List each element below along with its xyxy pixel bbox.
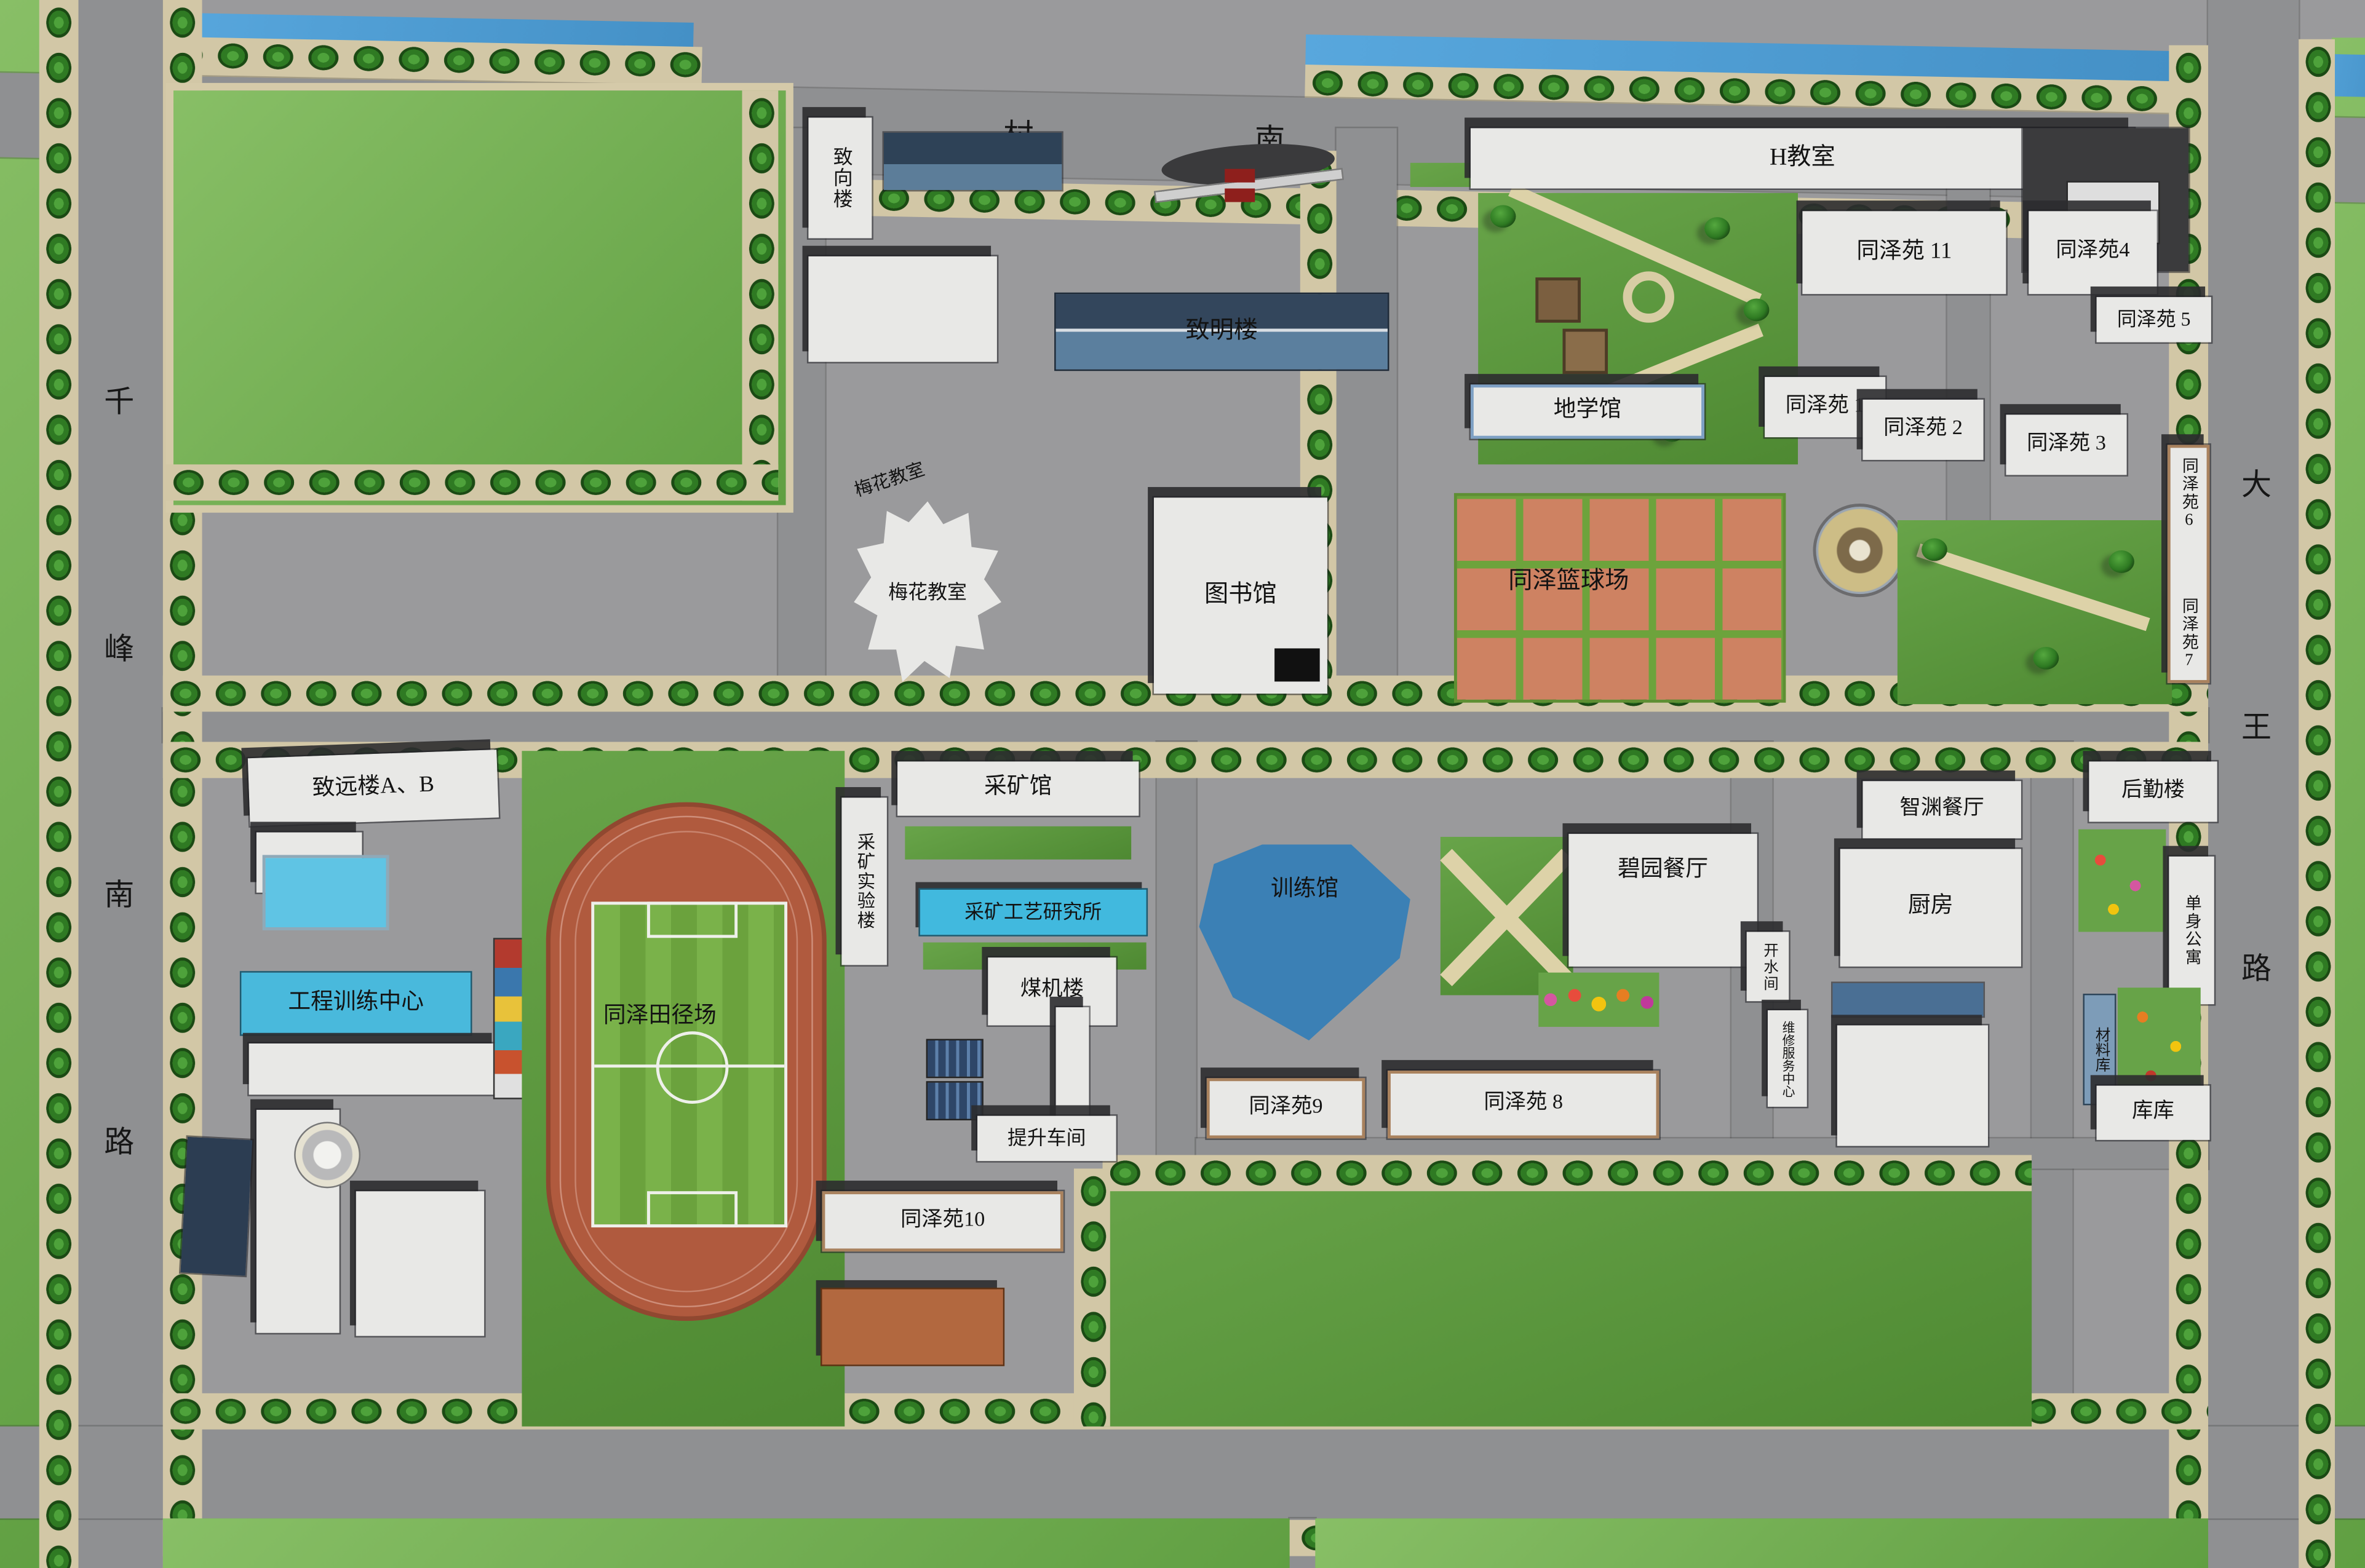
label-zhixianglou: 致向楼 [829,146,852,210]
pavilion [1565,331,1605,371]
building-sw-slab [249,1043,498,1095]
road-name-east: 大王路 [2232,460,2280,988]
tree-row [1103,1155,2032,1191]
building-zhiyuan-canting: 智渊餐厅 [1862,781,2021,838]
building-blue-strip [1832,983,1983,1016]
building-south-block [1837,1025,1988,1146]
penalty-box [647,1191,737,1227]
building-tongzeyuan-3: 同泽苑 3 [2006,414,2126,475]
flower-bed [1538,973,1659,1027]
lawn-northwest [166,83,793,513]
building-tongzeyuan-4: 同泽苑4 [2029,211,2156,294]
road-name-char: 峰 [104,624,134,667]
label-zhiminglou: 致明楼 [1185,318,1258,346]
label-tushuguan: 图书馆 [1204,582,1277,609]
building-kuku: 库库 [2097,1086,2210,1140]
building-navy-slanted [180,1137,252,1276]
building-weixiu: 维修服务中心 [1768,1010,1807,1107]
road-name-west: 千峰南路 [93,377,145,1161]
soccer-field [591,901,787,1227]
label-h-classroom: H教室 [1770,145,1835,172]
label-meihua-hint: 梅花教室 [853,460,928,502]
building-tongzeyuan-8: 同泽苑 8 [1388,1071,1659,1138]
tree-row [1074,1168,1110,1426]
athletics-zone: 同泽田径场 [522,751,845,1427]
tree [2033,647,2059,670]
road-south [0,1427,2365,1519]
label-tisheng: 提升车间 [1008,1127,1086,1150]
tree-row [2299,39,2335,1568]
building-annex [808,256,997,362]
garden-cross-paths [1441,837,1573,995]
building-zhiyuanlou: 致远楼A、B [248,750,499,826]
lawn-bottom-east [1315,1518,2208,1568]
label-kuku: 库库 [2132,1101,2174,1125]
label-weixiu: 维修服务中心 [1780,1020,1795,1097]
building-sw-l [356,1191,484,1336]
building-meihua: 梅花教室 [849,497,1006,687]
label-tongzeyuan-1: 同泽苑 1 [1786,395,1865,419]
road-campus-middle [163,709,2208,742]
building-danshen: 单身公寓 [2169,857,2214,1004]
building-tongzeyuan-10: 同泽苑10 [822,1191,1063,1251]
label-meihua: 梅花教室 [888,581,967,604]
building-kaishui: 开水间 [1747,932,1789,1001]
circle-plaza [296,1123,359,1187]
label-dixueguan: 地学馆 [1554,398,1621,424]
road-name-char: 南 [104,871,134,914]
label-zhiyuanlou: 致远楼A、B [312,773,435,803]
label-caikuang-lab: 采矿实验楼 [854,833,875,930]
building-houqin: 后勤楼 [2089,761,2217,822]
basketball-courts: 同泽篮球场 [1457,496,1783,700]
road-internal [2032,742,2072,1426]
label-danshen: 单身公寓 [2182,894,2201,967]
building-caikuang-inst: 采矿工艺研究所 [920,890,1147,935]
label-tongzeyuan-11: 同泽苑 11 [1856,240,1952,266]
label-basketball-courts: 同泽篮球场 [1508,568,1629,596]
label-tongzeyuan-9: 同泽苑9 [1249,1096,1322,1120]
road-name-char: 千 [104,377,134,421]
label-tongzeyuan-4: 同泽苑4 [2056,240,2129,264]
road-name-char: 大 [2241,460,2272,504]
label-tongzeyuan-3: 同泽苑 3 [2027,433,2106,457]
road-name-char: 路 [104,1117,134,1161]
building-gongcheng: 工程训练中心 [241,973,471,1035]
label-zhiyuan-canting: 智渊餐厅 [1900,798,1984,822]
road-name-char: 王 [2241,702,2272,745]
park-ring [1623,271,1674,322]
tree [1490,205,1516,228]
building-meijilou: 煤机楼 [988,957,1116,1025]
label-caikuangguan: 采矿馆 [984,775,1052,801]
lawn-bottom-west [163,1518,1290,1568]
label-meijilou: 煤机楼 [1020,980,1084,1004]
building-tisheng: 提升车间 [977,1116,1116,1162]
label-biyuan: 碧园餐厅 [1618,858,1708,884]
pavilion [1538,280,1578,320]
label-xunlianguan: 训练馆 [1271,877,1338,903]
solar-roof-building [928,1040,982,1077]
building-tongzeyuan-11: 同泽苑 11 [1802,211,2006,294]
building-tushuguan: 图书馆 [1154,497,1327,694]
building-tongzeyuan-6-7: 同泽苑6 同泽苑7 [2168,445,2210,683]
label-tongzeyuan-10: 同泽苑10 [900,1210,985,1233]
building-orange-dorm [822,1289,1003,1365]
garden-east [2078,830,2166,932]
green-strip-east [2332,38,2365,1568]
tree-row [39,0,79,1568]
gate-house [1225,169,1255,183]
label-tongzeyuan-8: 同泽苑 8 [1484,1093,1563,1117]
label-tongzeyuan-5: 同泽苑 5 [2117,309,2191,331]
label-gongcheng: 工程训练中心 [288,991,424,1016]
building-zhiminglou: 致明楼 [1056,294,1388,370]
tree-row [742,90,778,501]
building-navy-block [884,133,1062,190]
label-tongzeyuan-7: 同泽苑7 [2179,597,2198,671]
label-caikuang-inst: 采矿工艺研究所 [964,901,1102,924]
label-tongzeyuan-6: 同泽苑6 [2179,457,2198,531]
round-plaza [1816,507,1903,594]
building-biyuan: 碧园餐厅 [1568,834,1757,967]
campus-map: 移村南街 千峰南路 大王路 [0,0,2365,1568]
building-caikuang-lab: 采矿实验楼 [841,798,887,965]
label-tongzeyuan-2: 同泽苑 2 [1883,418,1963,441]
label-cailiao: 材料库 [2091,1027,2108,1072]
label-chufang: 厨房 [1908,895,1954,921]
tree [1704,217,1730,240]
library-notch [1274,648,1320,681]
building-tongzeyuan-2: 同泽苑 2 [1862,400,1983,460]
road-entrance [1337,128,1397,708]
building-chufang: 厨房 [1840,849,2021,967]
tree [1922,538,1947,561]
building-tongzeyuan-9: 同泽苑9 [1207,1078,1365,1138]
label-kaishui: 开水间 [1759,941,1776,991]
building-dixueguan: 地学馆 [1471,384,1704,438]
label-houqin: 后勤楼 [2121,780,2185,804]
park-east [1898,520,2172,704]
penalty-box [647,901,737,938]
road-name-char: 路 [2241,944,2272,988]
label-track: 同泽田径场 [603,1004,717,1030]
garden-strip [905,826,1131,860]
tree [2109,550,2134,573]
gate-house [1225,189,1255,202]
building-zhixianglou: 致向楼 [808,117,872,238]
building-xunlianguan: 训练馆 [1199,844,1410,1040]
tree-row [166,464,779,501]
building-tongzeyuan-5: 同泽苑 5 [2097,297,2211,343]
lawn-south [1103,1168,2032,1426]
building-caikuangguan: 采矿馆 [897,761,1139,815]
solar-roof-building [928,1083,982,1119]
tree [1744,299,1770,322]
pool [266,858,386,927]
